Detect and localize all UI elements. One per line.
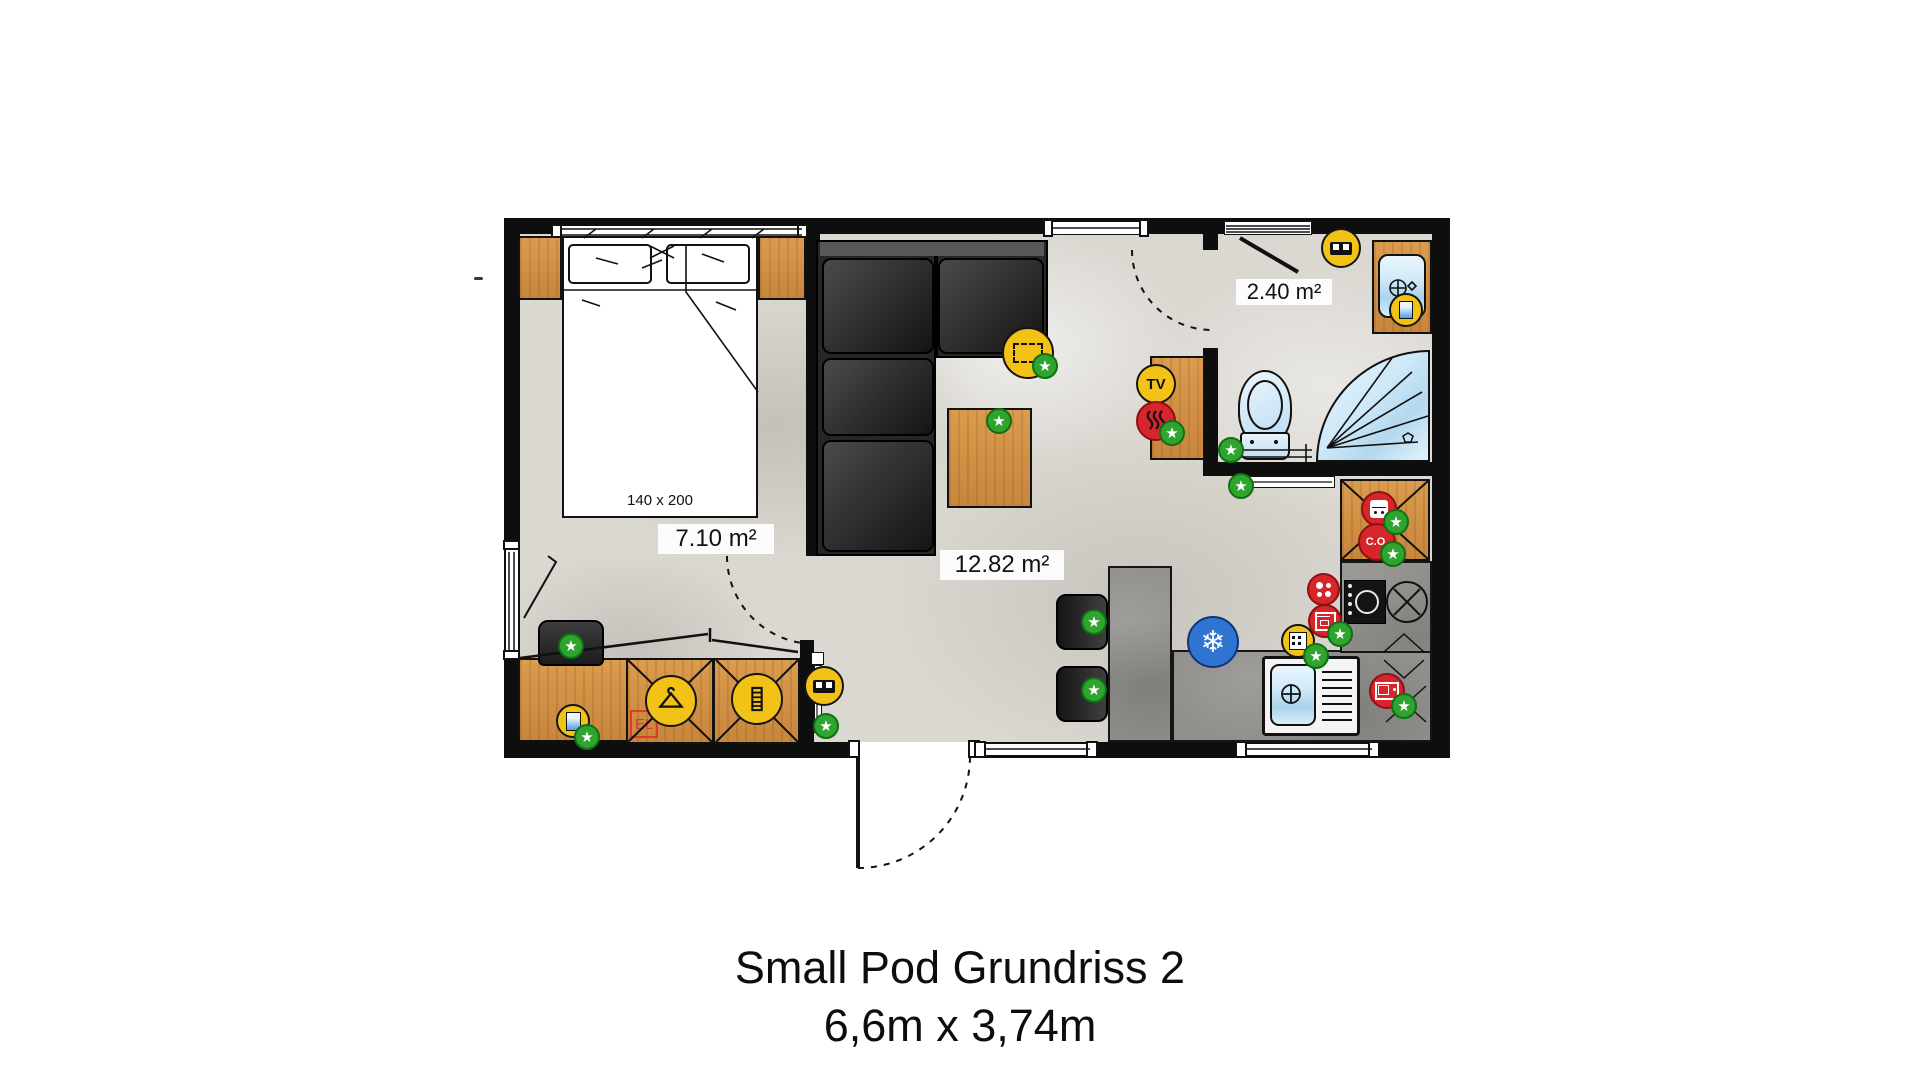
plan-dimensions: 6,6m x 3,74m	[0, 1000, 1920, 1052]
window-kitchen-bottom-cap-left	[1235, 741, 1247, 758]
tv-icon: TV	[1136, 364, 1176, 404]
star-glyph: ★	[1234, 479, 1247, 494]
bedroom-area-label: 7.10 m²	[658, 524, 774, 554]
entrance-frame-left	[848, 740, 860, 758]
wardrobe-shelves-icon	[731, 673, 783, 725]
fridge-freezer-icon: ❄	[1187, 616, 1239, 668]
star-glyph: ★	[1038, 359, 1051, 374]
star-glyph: ★	[1397, 699, 1410, 714]
window-living-top-cap-left	[1043, 219, 1053, 237]
window-kitchen-bottom	[1243, 743, 1374, 756]
smart-device-icon: ★	[1218, 437, 1244, 463]
smart-device-icon: ★	[1081, 677, 1107, 703]
nightstand-left	[518, 236, 562, 300]
window-living-bottom-cap-right	[1086, 741, 1098, 758]
pillow-right	[666, 244, 750, 284]
star-glyph: ★	[1224, 443, 1237, 458]
smart-device-icon: ★	[1380, 541, 1406, 567]
window-living-top	[1050, 221, 1142, 235]
smart-device-icon: ★	[1159, 420, 1185, 446]
radiator-glyph	[1330, 242, 1352, 255]
smart-device-icon: ★	[986, 408, 1012, 434]
sofa-cushion-chaise	[822, 440, 934, 552]
wardrobe-divider	[712, 660, 715, 742]
sofa-cushion-middle	[822, 358, 934, 436]
hob-icon	[1307, 573, 1340, 606]
radiator-living-rail	[1243, 476, 1335, 488]
floor-plan-page: 140 x 200 EL	[0, 0, 1920, 1080]
window-sensor-icon-bathroom	[1389, 293, 1423, 327]
star-glyph: ★	[1087, 683, 1100, 698]
radiator-hall-cap	[811, 652, 824, 665]
window-bathroom-top	[1224, 221, 1312, 235]
sofa-back-top	[820, 242, 1044, 256]
window-bedroom-left	[505, 548, 519, 652]
star-glyph: ★	[819, 719, 832, 734]
smart-device-icon: ★	[574, 724, 600, 750]
plan-title: Small Pod Grundriss 2	[0, 942, 1920, 994]
smart-device-icon: ★	[1228, 473, 1254, 499]
toilet-tank-dot-right	[1274, 440, 1278, 444]
star-glyph: ★	[1309, 649, 1322, 664]
wall-bathroom-vertical	[1203, 348, 1218, 462]
radiator-glyph	[813, 680, 835, 693]
kitchen-peninsula	[1108, 566, 1172, 742]
wall-right	[1432, 218, 1450, 758]
tv-label: TV	[1146, 376, 1165, 393]
living-area-label: 12.82 m²	[940, 550, 1064, 580]
bed-size-label: 140 x 200	[610, 492, 710, 510]
smart-device-icon: ★	[1391, 693, 1417, 719]
radiator-icon-hall	[804, 666, 844, 706]
star-glyph: ★	[1165, 426, 1178, 441]
dishwasher-glyph	[1289, 632, 1307, 650]
entrance-opening	[856, 742, 972, 758]
pillow-left	[568, 244, 652, 284]
sofa-cushion-corner	[822, 258, 934, 354]
electric-panel-label: EL	[635, 716, 653, 733]
smart-device-icon: ★	[1327, 621, 1353, 647]
star-glyph: ★	[1333, 627, 1346, 642]
star-glyph: ★	[1386, 547, 1399, 562]
wall-bathroom-stub	[1203, 234, 1218, 250]
star-glyph: ★	[992, 414, 1005, 429]
artifact-dash	[474, 277, 483, 280]
star-glyph: ★	[1389, 515, 1402, 530]
toilet-tank-dot-left	[1250, 440, 1254, 444]
star-glyph: ★	[580, 730, 593, 745]
toilet-bowl-inner	[1247, 380, 1283, 430]
toilet-tank	[1240, 432, 1290, 460]
cooktop	[1344, 580, 1386, 624]
bathroom-area-label: 2.40 m²	[1236, 279, 1332, 305]
smart-device-icon: ★	[558, 633, 584, 659]
window-bedroom-left-cap-top	[503, 540, 520, 550]
kitchen-sink-basin	[1270, 664, 1316, 726]
smart-device-icon: ★	[1303, 643, 1329, 669]
smart-device-icon: ★	[813, 713, 839, 739]
window-living-bottom	[982, 743, 1092, 756]
star-glyph: ★	[1087, 615, 1100, 630]
window-kitchen-bottom-cap-right	[1368, 741, 1380, 758]
star-glyph: ★	[564, 639, 577, 654]
nightstand-right	[758, 236, 806, 300]
window-living-top-cap-right	[1139, 219, 1149, 237]
window-living-bottom-cap-left	[974, 741, 986, 758]
radiator-icon-bathroom	[1321, 228, 1361, 268]
hob-glyph	[1315, 581, 1333, 599]
smart-device-icon: ★	[1383, 509, 1409, 535]
snowflake-glyph: ❄	[1200, 625, 1225, 660]
window-glyph	[1399, 301, 1413, 319]
wardrobe-hanger-icon	[645, 675, 697, 727]
smart-device-icon: ★	[1081, 609, 1107, 635]
smart-device-icon: ★	[1032, 353, 1058, 379]
